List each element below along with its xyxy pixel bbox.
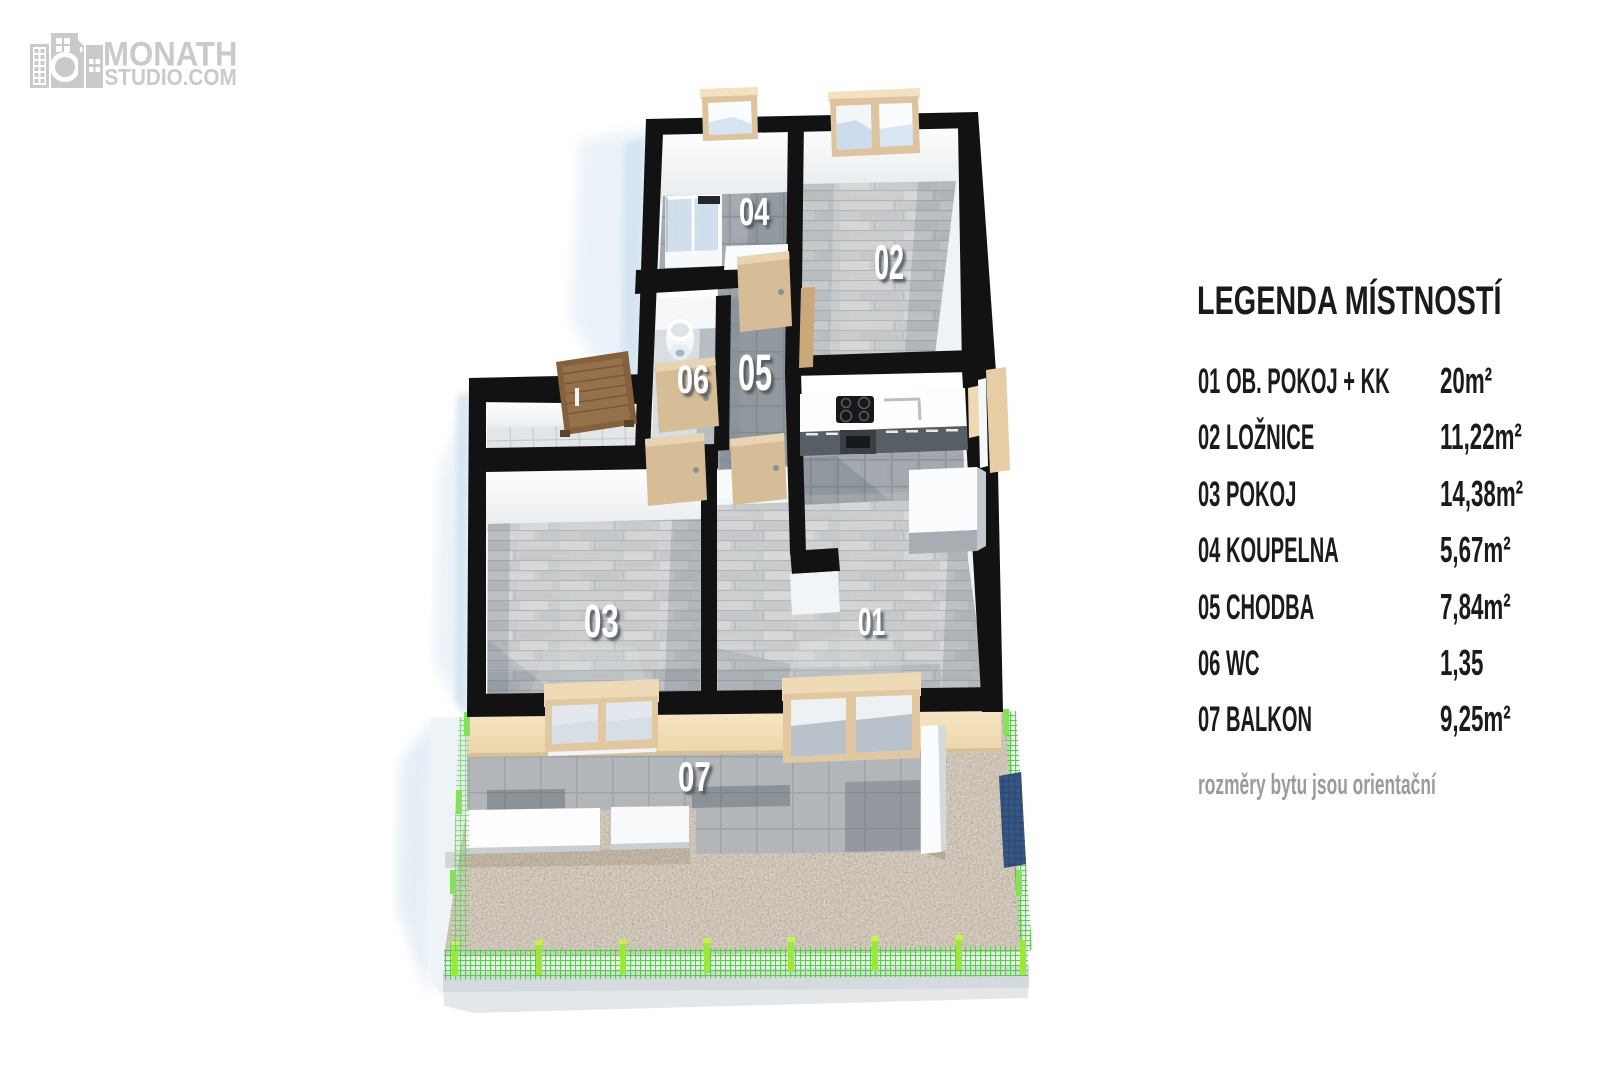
svg-text:LEGENDA MÍSTNOSTÍ: LEGENDA MÍSTNOSTÍ [1197,277,1503,323]
svg-text:11,22m²: 11,22m² [1440,418,1522,458]
svg-text:STUDIO.COM: STUDIO.COM [105,64,237,90]
svg-text:07: 07 [678,753,711,801]
svg-text:05: 05 [738,344,772,401]
svg-text:06: 06 [677,357,709,402]
svg-text:07 BALKON: 07 BALKON [1198,700,1312,739]
svg-text:04: 04 [739,191,770,234]
svg-text:rozměry bytu jsou orientační: rozměry bytu jsou orientační [1198,769,1437,802]
svg-text:03: 03 [584,596,619,647]
svg-text:02: 02 [874,236,904,291]
svg-text:5,67m²: 5,67m² [1440,531,1511,571]
svg-text:02 LOŽNICE: 02 LOŽNICE [1198,418,1314,457]
svg-text:05 CHODBA: 05 CHODBA [1198,588,1314,627]
svg-text:06 WC: 06 WC [1198,644,1259,683]
svg-text:01: 01 [858,600,885,643]
svg-text:1,35: 1,35 [1440,644,1483,684]
svg-text:03 POKOJ: 03 POKOJ [1198,475,1296,514]
svg-text:04 KOUPELNA: 04 KOUPELNA [1198,531,1339,570]
svg-text:9,25m²: 9,25m² [1440,700,1511,740]
svg-text:14,38m²: 14,38m² [1440,475,1523,515]
svg-text:01 OB. POKOJ + KK: 01 OB. POKOJ + KK [1198,362,1390,401]
svg-text:7,84m²: 7,84m² [1440,588,1511,628]
svg-text:20m²: 20m² [1440,362,1492,402]
